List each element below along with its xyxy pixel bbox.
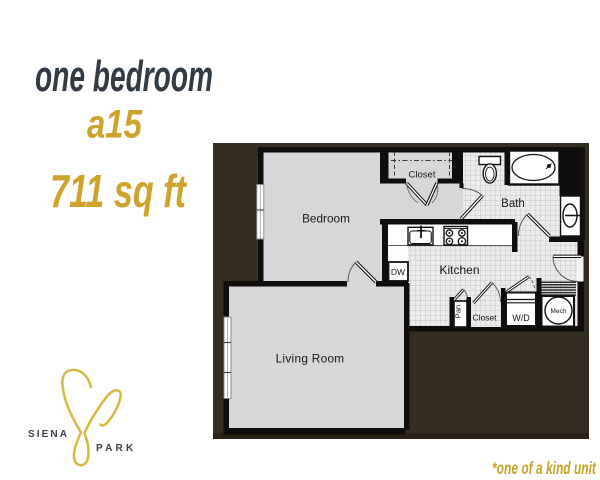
svg-text:PARK: PARK [96, 443, 136, 454]
svg-text:one bedroom: one bedroom [35, 52, 213, 101]
svg-text:Pan: Pan [454, 305, 463, 318]
svg-text:Living Room: Living Room [276, 352, 345, 366]
svg-text:DW: DW [391, 267, 405, 277]
svg-text:Mech: Mech [551, 308, 567, 315]
svg-text:W/D: W/D [512, 313, 530, 323]
svg-text:Bath: Bath [501, 198, 525, 210]
svg-text:a15: a15 [87, 101, 142, 146]
svg-text:Closet: Closet [472, 313, 497, 323]
svg-text:Closet: Closet [409, 169, 436, 180]
svg-text:Bedroom: Bedroom [302, 211, 350, 225]
svg-text:SIENA: SIENA [28, 429, 69, 440]
svg-text:Kitchen: Kitchen [439, 263, 479, 277]
svg-text:*one of a kind unit: *one of a kind unit [492, 459, 597, 479]
svg-text:711 sq ft: 711 sq ft [50, 165, 187, 217]
